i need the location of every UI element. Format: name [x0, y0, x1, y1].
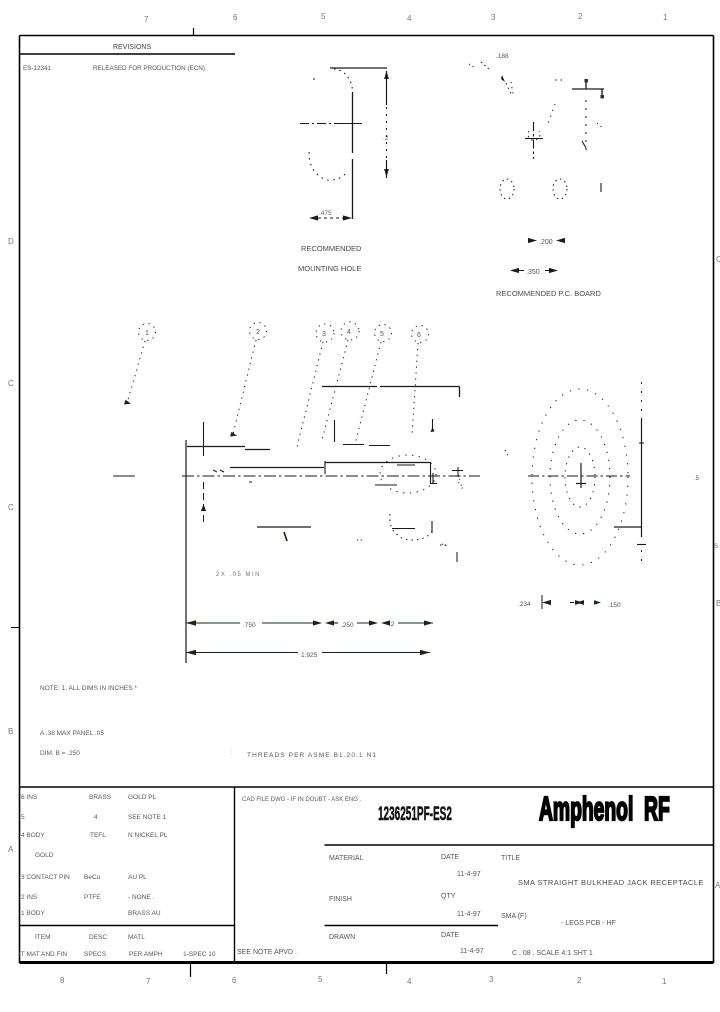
svg-text:SPECS: SPECS	[84, 951, 107, 958]
svg-text:CAD FILE DWG - IF IN DOUBT: CAD FILE DWG - IF IN DOUBT - ASK ENG .	[242, 797, 362, 803]
svg-text:SMA STRAIGHT BULKHEAD JACK REC: SMA STRAIGHT BULKHEAD JACK RECEPTACLE	[518, 878, 704, 887]
svg-text:3: 3	[322, 331, 326, 338]
svg-text:.2: .2	[383, 135, 389, 142]
svg-text:B: B	[716, 599, 720, 608]
svg-text:ITEM: ITEM	[35, 934, 51, 941]
svg-text:- NONE .: - NONE .	[128, 894, 155, 901]
svg-text:C: C	[8, 379, 14, 388]
svg-text:3 CONTACT PIN: 3 CONTACT PIN	[21, 874, 70, 881]
svg-text:2: 2	[578, 12, 583, 21]
svg-text:6: 6	[233, 13, 238, 22]
svg-text:4: 4	[347, 329, 351, 336]
svg-text:8: 8	[60, 976, 65, 985]
svg-text:11-4-97: 11-4-97	[457, 911, 481, 918]
svg-text:BeCu: BeCu	[84, 874, 101, 881]
svg-text:QTY: QTY	[441, 893, 456, 900]
svg-text:7: 7	[146, 977, 151, 986]
svg-text:REVISIONS: REVISIONS	[113, 44, 151, 51]
svg-text:ES-12341: ES-12341	[23, 65, 52, 72]
svg-text:4: 4	[407, 14, 412, 23]
svg-text:2X .05 MIN: 2X .05 MIN	[216, 572, 261, 578]
svg-text:.150: .150	[608, 602, 621, 609]
svg-text:DATE: DATE	[441, 932, 459, 939]
svg-text:.750: .750	[243, 622, 256, 629]
svg-text:.5: .5	[694, 476, 700, 482]
svg-text:1236251PF-ES2: 1236251PF-ES2	[378, 804, 452, 825]
svg-text:1-SPEC 10: 1-SPEC 10	[183, 951, 216, 958]
svg-text:FINISH: FINISH	[329, 896, 352, 903]
svg-text:2 INS: 2 INS	[21, 894, 38, 901]
svg-text:BRASS: BRASS	[89, 794, 112, 801]
svg-text:BRASS AU: BRASS AU	[128, 910, 161, 917]
svg-text:AU PL: AU PL	[128, 874, 147, 881]
svg-text:A: A	[8, 845, 14, 854]
svg-text:.200: .200	[539, 239, 553, 246]
svg-text:MOUNTING HOLE: MOUNTING HOLE	[298, 264, 361, 273]
svg-text:1: 1	[663, 13, 668, 22]
svg-text:1: 1	[662, 977, 667, 986]
svg-text:- LEGS PCB - HF: - LEGS PCB - HF	[561, 920, 616, 927]
svg-text:4 BODY: 4 BODY	[21, 832, 46, 839]
svg-text:1 BODY: 1 BODY	[21, 910, 46, 917]
svg-text:6: 6	[417, 332, 421, 339]
svg-text:DRAWN: DRAWN	[329, 934, 355, 941]
svg-text:D: D	[8, 237, 14, 246]
svg-text:MATL: MATL	[128, 934, 145, 941]
svg-text:C: C	[716, 255, 720, 264]
svg-text:.2: .2	[389, 621, 395, 628]
svg-text:DATE: DATE	[441, 854, 459, 861]
svg-text:MATERIAL: MATERIAL	[329, 855, 364, 862]
svg-text:RECOMMENDED: RECOMMENDED	[301, 244, 362, 253]
svg-text:Amphenol RF: Amphenol RF	[539, 791, 670, 828]
svg-text:5: 5	[318, 975, 323, 984]
svg-text:5: 5	[21, 814, 25, 821]
svg-text:3: 3	[489, 975, 494, 984]
svg-text:GOLD PL: GOLD PL	[128, 794, 157, 801]
svg-text:7: 7	[144, 15, 149, 24]
svg-text:.234: .234	[518, 601, 531, 608]
svg-text:.188: .188	[496, 53, 509, 60]
svg-text:PER AMPH: PER AMPH	[129, 951, 163, 958]
svg-text:6 INS: 6 INS	[21, 794, 38, 801]
svg-text:NOTE: 1. ALL DIMS IN INCHES: NOTE: 1. ALL DIMS IN INCHES *	[40, 685, 137, 692]
svg-text:SEE NOTE APVD .: SEE NOTE APVD .	[237, 949, 297, 956]
svg-text:4: 4	[94, 814, 98, 821]
svg-text:TEFL: TEFL	[90, 832, 106, 839]
svg-text:C . 08 . SCALE 4:1 SHT 1: C . 08 . SCALE 4:1 SHT 1	[512, 950, 593, 957]
svg-text:5: 5	[321, 12, 326, 21]
svg-text:5: 5	[380, 331, 384, 338]
svg-text:TITLE: TITLE	[501, 855, 520, 862]
svg-text:C: C	[8, 503, 14, 512]
svg-text:2: 2	[256, 329, 260, 336]
svg-text::: :	[230, 749, 232, 756]
svg-text:SMA (F): SMA (F)	[501, 913, 527, 920]
svg-text:SEE NOTE 1: SEE NOTE 1	[128, 814, 167, 821]
svg-text:DESC: DESC	[89, 934, 107, 941]
svg-text:3: 3	[491, 13, 496, 22]
svg-text:11-4-97: 11-4-97	[457, 871, 481, 878]
svg-text:.350: .350	[526, 269, 540, 276]
svg-text:.475: .475	[319, 210, 332, 217]
svg-text:RELEASED FOR PRODUCTION (ECN): RELEASED FOR PRODUCTION (ECN)	[93, 65, 205, 72]
svg-text:1.925: 1.925	[301, 652, 318, 659]
svg-text:GOLD: GOLD	[35, 852, 54, 859]
svg-text:A: A	[715, 881, 720, 890]
svg-text:N NICKEL PL: N NICKEL PL	[128, 832, 168, 839]
svg-text:S: S	[714, 544, 718, 550]
svg-text:4: 4	[407, 977, 412, 986]
svg-text:PTFE: PTFE	[84, 894, 101, 901]
svg-text:2: 2	[577, 976, 582, 985]
svg-text:RECOMMENDED P.C. BOARD: RECOMMENDED P.C. BOARD	[496, 289, 601, 298]
svg-text:B: B	[8, 727, 13, 736]
svg-text:IT MAT AND FIN: IT MAT AND FIN	[19, 951, 67, 958]
svg-text:1: 1	[145, 330, 149, 337]
svg-text:DIM. B = .250: DIM. B = .250	[40, 750, 80, 757]
svg-text:.250: .250	[341, 622, 354, 629]
svg-text:THREADS PER ASME B1.20.1 N1: THREADS PER ASME B1.20.1 N1	[247, 752, 377, 759]
svg-text:A .38 MAX PANEL .05: A .38 MAX PANEL .05	[40, 730, 104, 737]
svg-text:11-4-97: 11-4-97	[460, 948, 484, 955]
svg-text:6: 6	[232, 976, 237, 985]
